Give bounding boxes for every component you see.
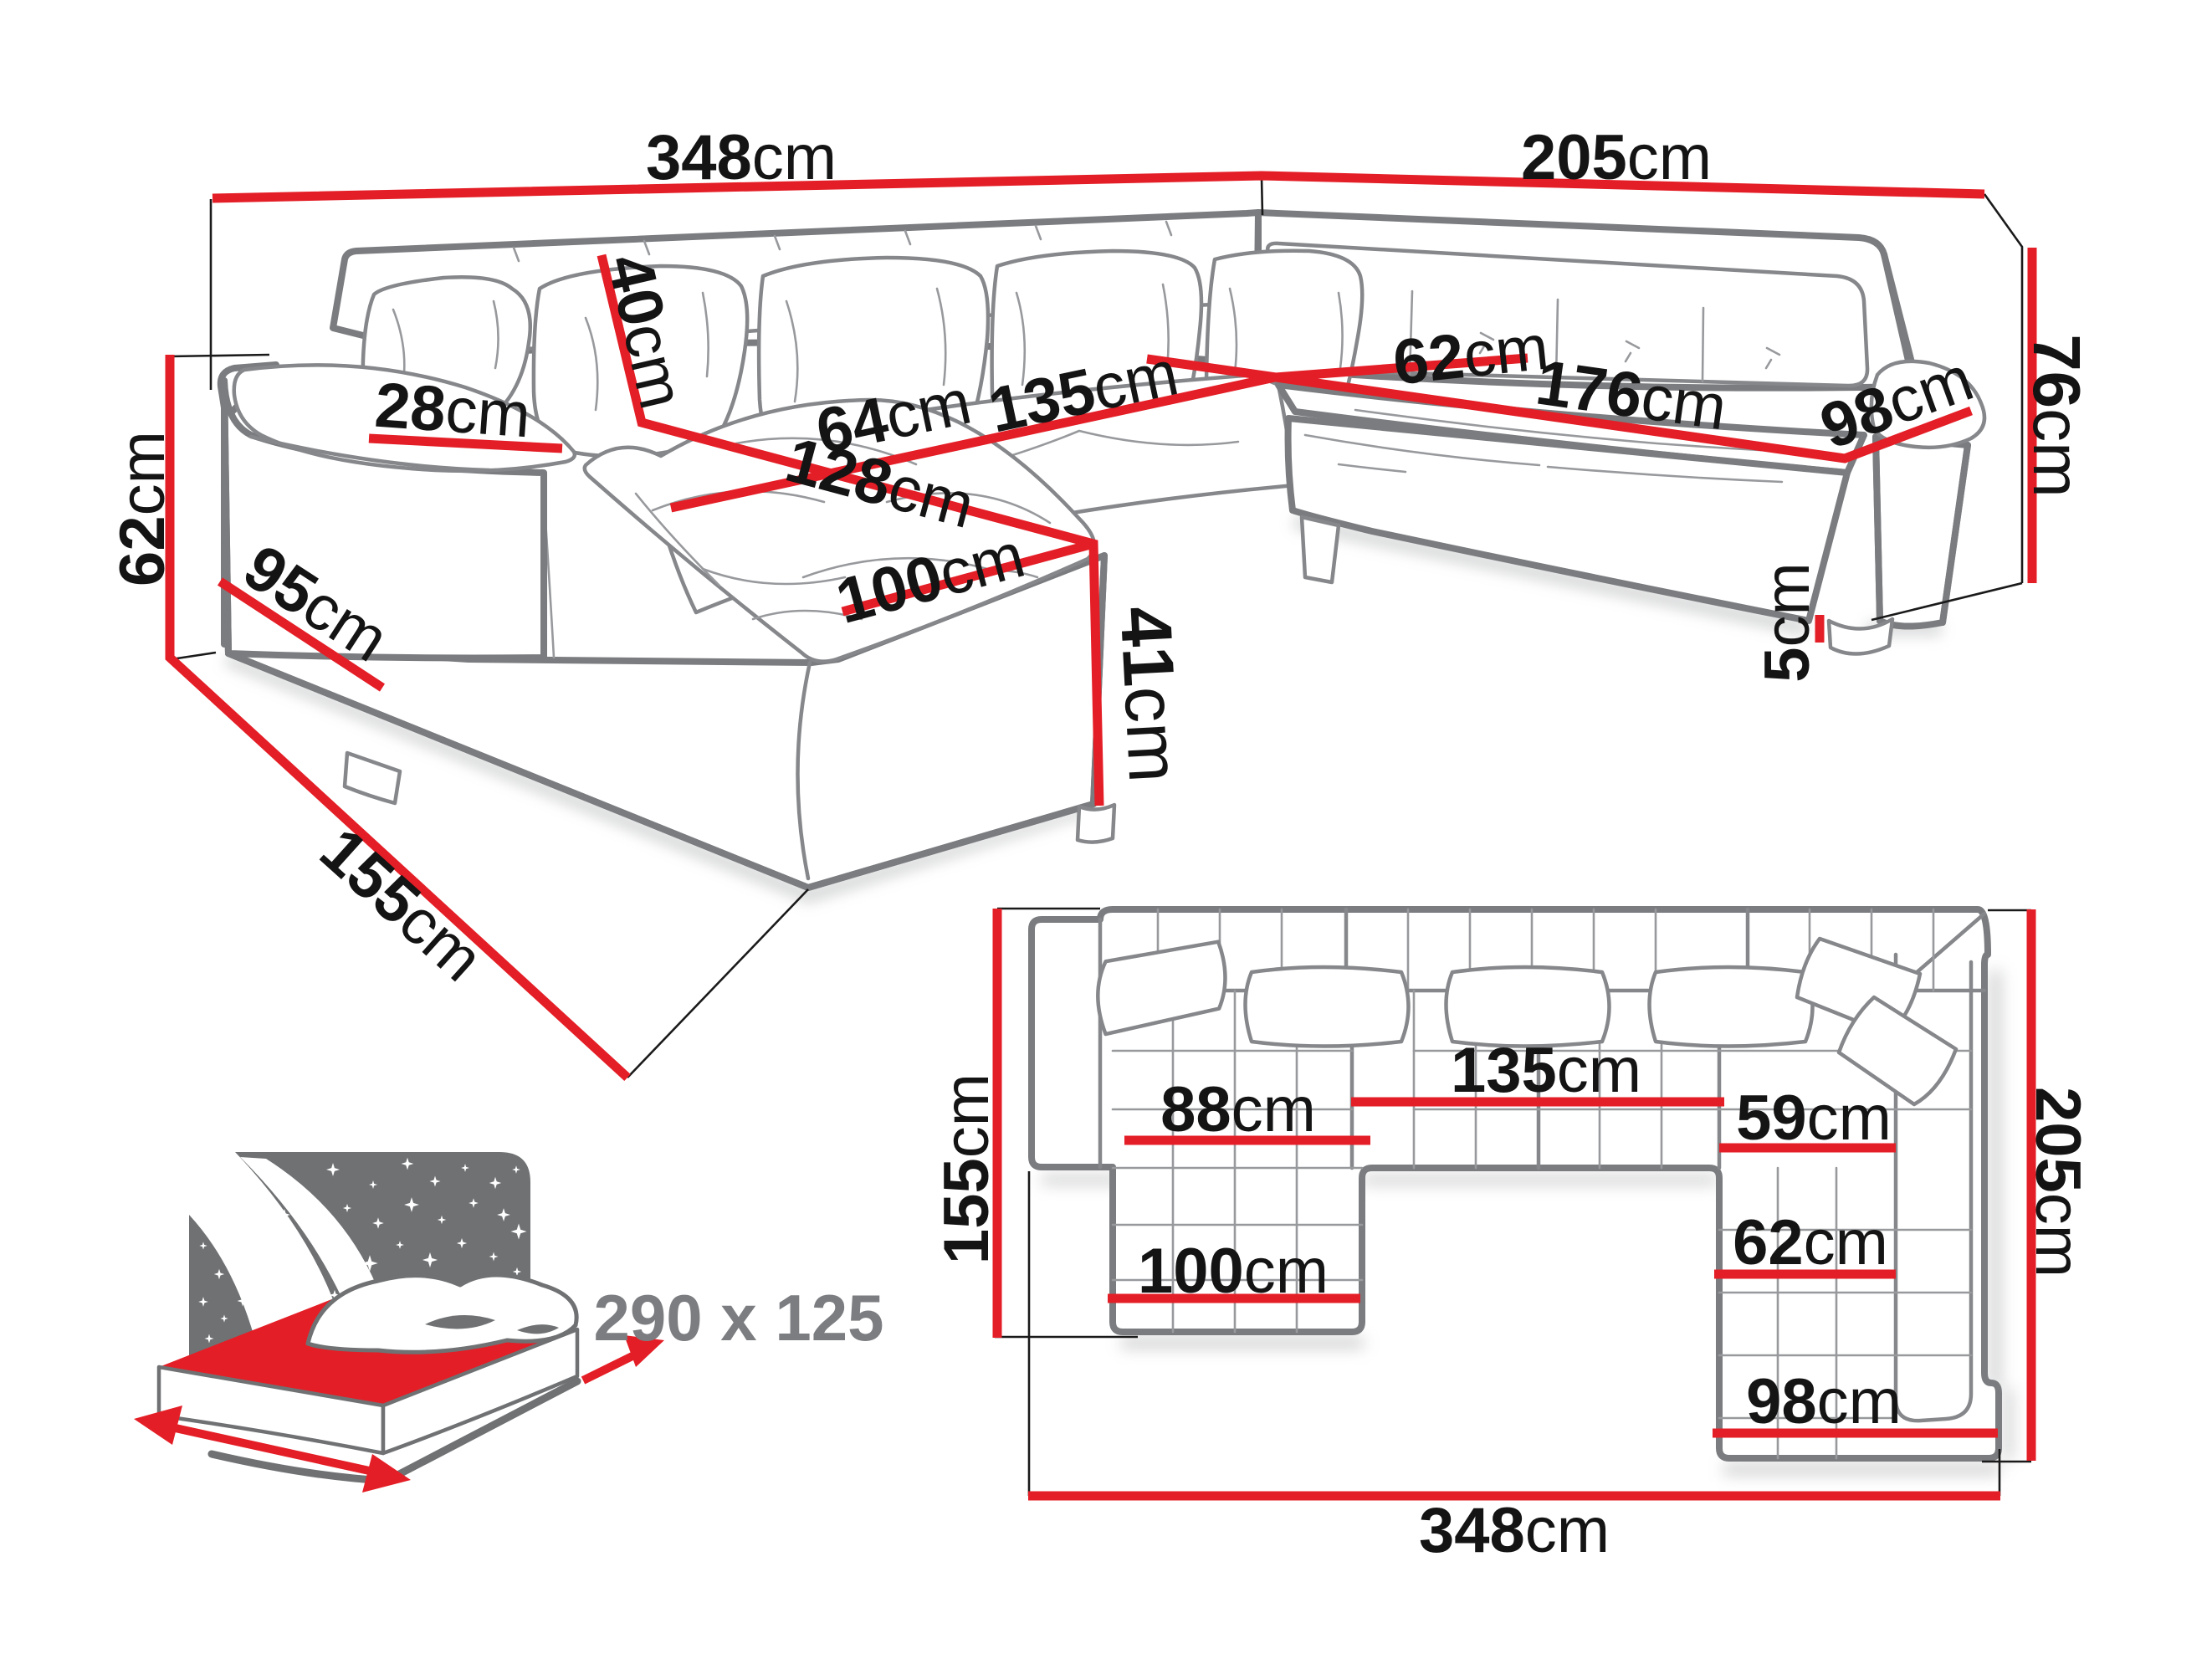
svg-text:348cm: 348cm [1419, 1495, 1610, 1566]
svg-text:348cm: 348cm [646, 122, 837, 193]
svg-text:59cm: 59cm [1736, 1083, 1892, 1154]
svg-text:28cm: 28cm [372, 370, 532, 452]
svg-text:290 x 125: 290 x 125 [593, 1281, 883, 1354]
svg-text:98cm: 98cm [1746, 1366, 1902, 1437]
svg-text:76cm: 76cm [2020, 334, 2094, 498]
svg-text:205cm: 205cm [1521, 122, 1712, 193]
svg-text:205cm: 205cm [2022, 1087, 2093, 1278]
svg-text:88cm: 88cm [1160, 1074, 1316, 1145]
svg-text:155cm: 155cm [931, 1073, 1002, 1264]
svg-text:62cm: 62cm [107, 431, 178, 586]
svg-text:135cm: 135cm [1451, 1035, 1641, 1106]
svg-text:100cm: 100cm [1138, 1236, 1329, 1307]
svg-text:62cm: 62cm [1733, 1207, 1888, 1278]
svg-text:5cm: 5cm [1752, 562, 1823, 683]
svg-text:41cm: 41cm [1105, 604, 1195, 784]
